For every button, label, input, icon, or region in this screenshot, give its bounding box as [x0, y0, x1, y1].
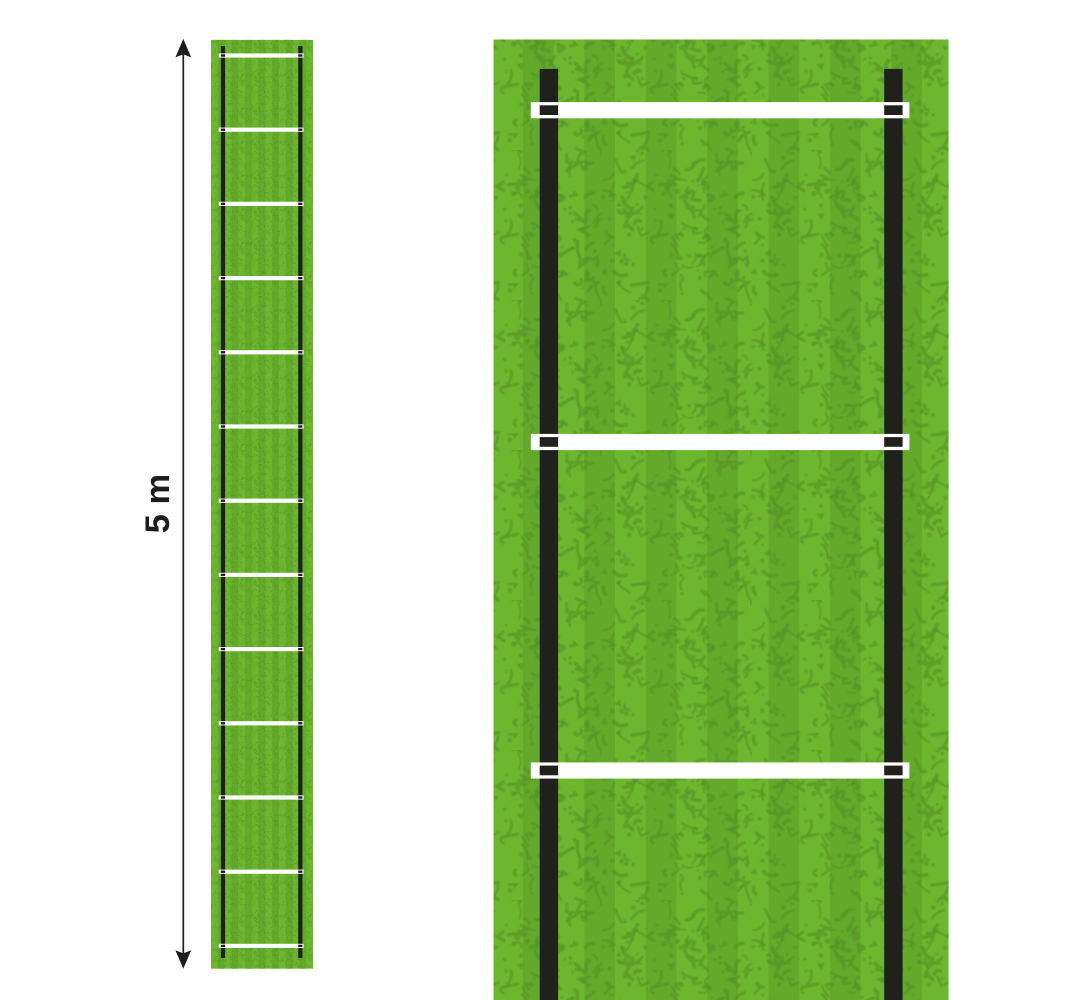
svg-text:5 m: 5 m — [139, 474, 177, 533]
